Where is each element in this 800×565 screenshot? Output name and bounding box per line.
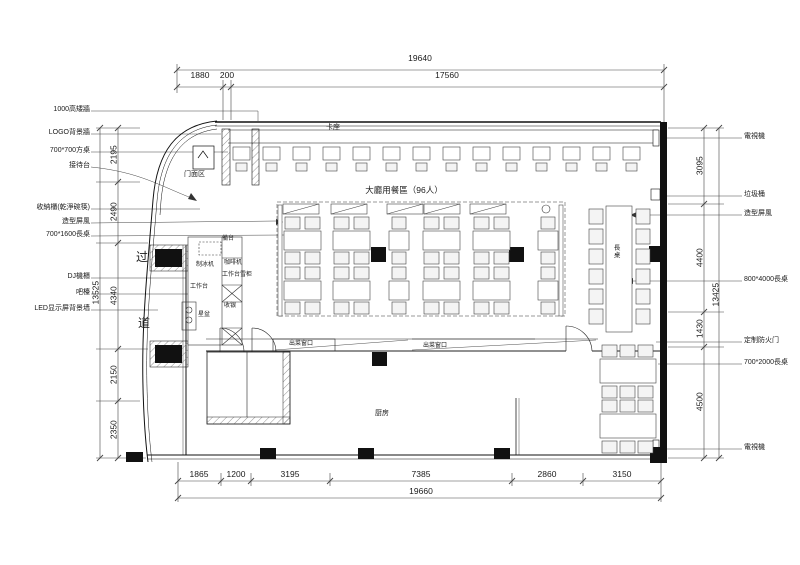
label-left-dj-booth: DJ機櫃 (10, 273, 90, 281)
dim-bottom-seg5: 2860 (532, 470, 562, 479)
right-wall (660, 122, 667, 462)
hall-column-2 (509, 247, 524, 262)
dim-bottom-overall: 19660 (404, 487, 438, 496)
label-right-tv-bottom: 電視機 (744, 444, 765, 452)
dim-bottom-seg1: 1865 (184, 470, 214, 479)
label-hall-area: 大廳用餐區（96人） (359, 186, 449, 195)
label-left-logo-wall: LOGO背景牆 (10, 129, 90, 137)
dim-left-seg3: 4340 (109, 279, 118, 313)
tv-top (653, 130, 659, 146)
label-worktable-fridge: 工作台雪柜 (222, 272, 252, 279)
dim-ticks-top (174, 67, 667, 90)
label-prep-counter: 備台 (222, 236, 234, 243)
label-serving-window-2: 出菜窗口 (423, 343, 447, 350)
label-left-led-wall: LED显示屏背景墙 (10, 305, 90, 313)
dim-left-seg2: 2490 (109, 195, 118, 229)
dim-right-seg2: 4400 (695, 241, 704, 275)
dim-bottom-seg6: 3150 (607, 470, 637, 479)
hall-column-1 (371, 247, 386, 262)
dim-bottom-seg2: 1200 (221, 470, 251, 479)
dim-top-seg1: 1880 (185, 71, 215, 80)
dim-right-seg1: 3095 (695, 149, 704, 183)
label-right-screen: 造型屏風 (744, 210, 772, 218)
label-long-table: 長桌 (612, 244, 619, 259)
label-right-trash: 垃圾桶 (744, 191, 765, 199)
label-worktable: 工作台 (190, 284, 208, 291)
label-coffee-machine: 咖啡机 (224, 260, 242, 267)
floor-plan-canvas (0, 0, 800, 565)
dim-right-overall: 13425 (711, 278, 720, 312)
store-room (207, 352, 290, 424)
dim-bottom-seg4: 7385 (406, 470, 436, 479)
label-left-reception: 接待台 (10, 162, 90, 170)
label-corridor-bottom: 道 (138, 317, 150, 330)
label-left-screen: 造型屏風 (10, 218, 90, 226)
label-sink: 星盆 (198, 312, 210, 319)
label-left-bar: 吧檯 (10, 289, 90, 297)
label-ice-maker: 制冰机 (196, 262, 214, 269)
dim-top-seg2: 200 (216, 71, 238, 80)
dim-left-seg1: 2195 (109, 138, 118, 172)
label-left-square-table: 700*700方桌 (10, 147, 90, 155)
trash-bin (651, 189, 660, 200)
label-storefront-area: 门面区 (184, 171, 205, 179)
dim-right-seg3: 1430 (695, 312, 704, 346)
logo-wall (222, 129, 230, 185)
label-corridor-top: 过 (136, 251, 148, 264)
dim-top-overall: 19640 (395, 54, 445, 63)
label-right-long-table: 800*4000長桌 (744, 276, 788, 284)
floor-plan-sheet: 1000高矮牆 LOGO背景牆 700*700方桌 接待台 收納櫃(乾淨碗筷) … (0, 0, 800, 565)
wall-column (649, 246, 660, 262)
reception-desk (193, 146, 214, 169)
dim-top-seg3: 17560 (425, 71, 469, 80)
dim-bottom-seg3: 3195 (275, 470, 305, 479)
label-kitchen: 厨房 (375, 410, 389, 418)
entry-screen (252, 129, 259, 185)
label-booth-area: 卡座 (326, 124, 340, 132)
label-right-fire-door: 定制防火门 (744, 337, 779, 345)
dim-right-seg4: 4500 (695, 385, 704, 419)
label-right-table-2000: 700*2000長桌 (744, 359, 788, 367)
dim-left-seg4: 2150 (109, 358, 118, 392)
label-left-low-wall: 1000高矮牆 (10, 106, 90, 114)
label-cashier: 收银 (224, 303, 236, 310)
label-right-tv-top: 電視機 (744, 133, 765, 141)
label-left-storage-cabinet: 收納櫃(乾淨碗筷) (10, 204, 90, 212)
label-serving-window-1: 出菜窗口 (289, 341, 313, 348)
kitchen-column (372, 352, 387, 366)
bar-counter (182, 237, 242, 345)
dim-left-seg5: 2350 (109, 413, 118, 447)
label-left-long-table: 700*1600長桌 (10, 231, 90, 239)
dim-left-overall: 13525 (91, 276, 100, 310)
